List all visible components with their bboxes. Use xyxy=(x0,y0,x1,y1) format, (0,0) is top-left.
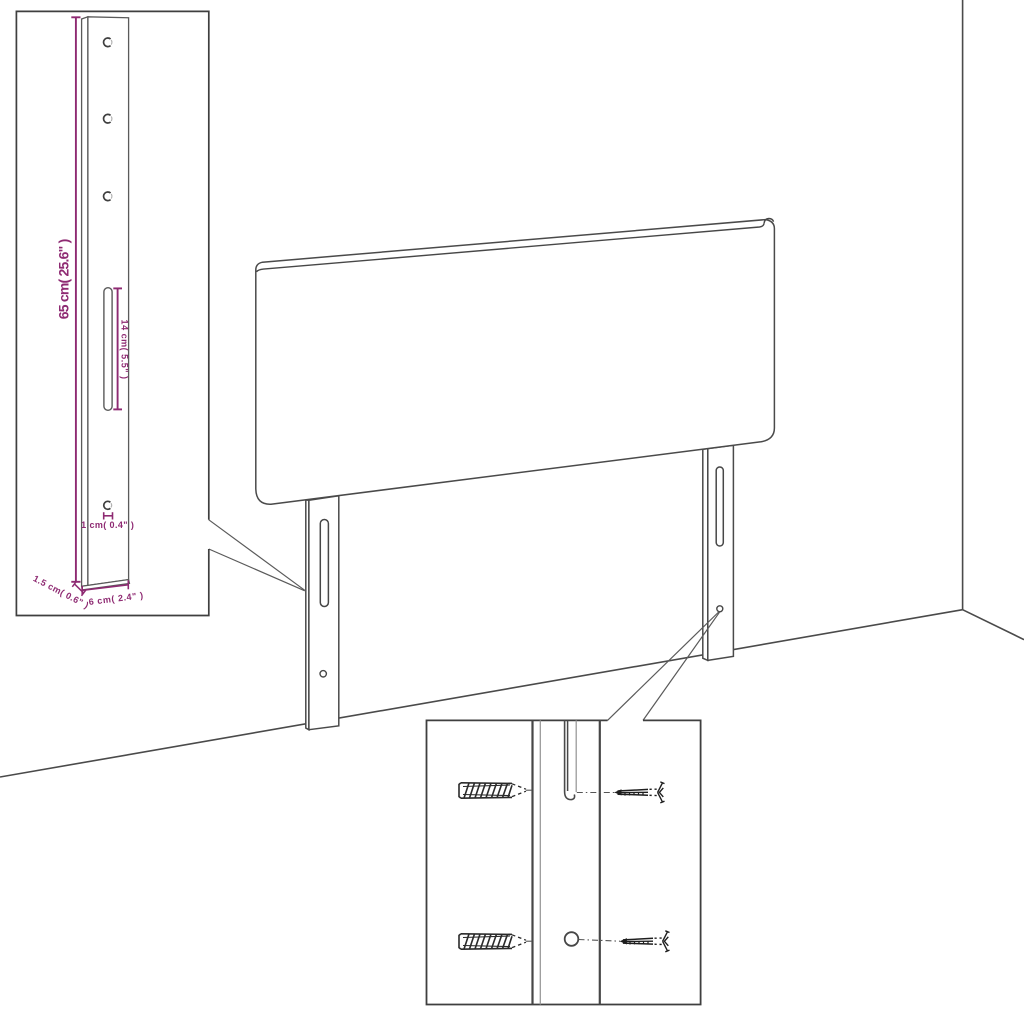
svg-text:14 cm( 5.5" ): 14 cm( 5.5" ) xyxy=(120,320,130,380)
svg-text:65 cm( 25.6" ): 65 cm( 25.6" ) xyxy=(56,239,72,320)
svg-text:1 cm( 0.4" ): 1 cm( 0.4" ) xyxy=(81,520,134,530)
